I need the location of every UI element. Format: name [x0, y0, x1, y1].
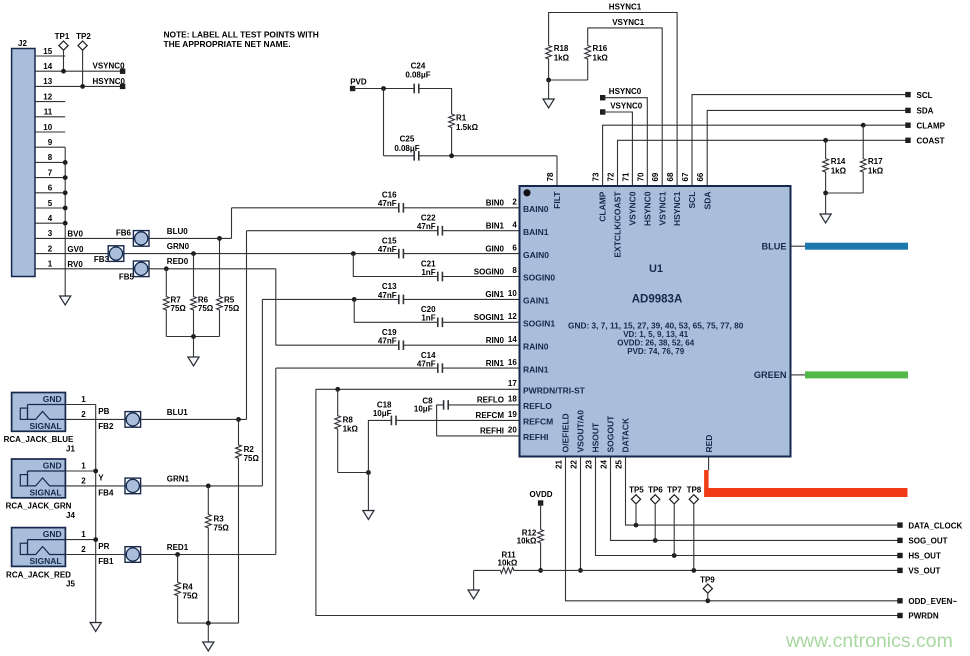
svg-text:RED: RED	[704, 435, 714, 453]
svg-text:SIGNAL: SIGNAL	[29, 487, 61, 497]
svg-text:SOGIN0: SOGIN0	[523, 273, 555, 283]
svg-text:VS_OUT: VS_OUT	[908, 567, 940, 576]
svg-text:RCA_JACK_RED: RCA_JACK_RED	[6, 570, 71, 579]
svg-text:11: 11	[44, 108, 53, 117]
svg-text:47nF: 47nF	[378, 337, 397, 346]
svg-text:HSOUT: HSOUT	[591, 422, 601, 453]
svg-text:PVD: PVD	[350, 78, 367, 87]
svg-text:SCL: SCL	[917, 91, 933, 100]
svg-text:3: 3	[48, 229, 53, 238]
svg-text:VSYNC0: VSYNC0	[610, 102, 643, 111]
svg-text:GND: GND	[43, 529, 62, 539]
svg-text:75Ω: 75Ω	[171, 304, 187, 313]
svg-text:RV0: RV0	[67, 260, 83, 269]
svg-text:19: 19	[508, 410, 517, 419]
svg-text:2: 2	[81, 410, 86, 419]
svg-text:47nF: 47nF	[417, 360, 436, 369]
svg-text:RED1: RED1	[167, 543, 189, 552]
svg-text:47nF: 47nF	[417, 222, 436, 231]
svg-text:SIGNAL: SIGNAL	[29, 556, 61, 566]
svg-text:SOG_OUT: SOG_OUT	[908, 537, 947, 546]
svg-text:BLU1: BLU1	[167, 408, 188, 417]
svg-text:R2: R2	[244, 445, 255, 454]
svg-text:ODD_EVEN~: ODD_EVEN~	[908, 597, 957, 606]
svg-text:1: 1	[48, 260, 53, 269]
svg-text:1: 1	[81, 395, 86, 404]
svg-text:24: 24	[600, 459, 609, 468]
svg-text:R16: R16	[593, 44, 608, 53]
svg-text:1nF: 1nF	[421, 268, 435, 277]
svg-text:8: 8	[512, 266, 517, 275]
svg-text:VSYNC1: VSYNC1	[657, 191, 667, 225]
svg-text:67: 67	[681, 172, 690, 181]
svg-text:REFLO: REFLO	[477, 396, 504, 405]
svg-text:DATA_CLOCK: DATA_CLOCK	[908, 521, 962, 530]
svg-text:20: 20	[508, 426, 517, 435]
svg-text:R8: R8	[343, 416, 354, 425]
svg-text:GND: GND	[43, 394, 62, 404]
svg-text:9: 9	[48, 138, 53, 147]
svg-text:R4: R4	[183, 583, 194, 592]
svg-text:FILT: FILT	[552, 191, 562, 209]
svg-text:GREEN: GREEN	[754, 370, 787, 380]
svg-text:1: 1	[81, 530, 86, 539]
svg-text:GRN1: GRN1	[167, 474, 190, 483]
svg-text:10: 10	[508, 289, 517, 298]
svg-text:J2: J2	[18, 39, 27, 48]
svg-text:C25: C25	[400, 135, 415, 144]
svg-text:TP5: TP5	[629, 486, 644, 495]
svg-text:18: 18	[508, 395, 517, 404]
svg-text:VSYNC0: VSYNC0	[628, 191, 638, 225]
svg-text:5: 5	[48, 199, 53, 208]
svg-text:75Ω: 75Ω	[183, 592, 199, 601]
svg-text:GND: 3, 7, 11, 15, 27, 39, 40,: GND: 3, 7, 11, 15, 27, 39, 40, 53, 65, 7…	[568, 321, 744, 331]
svg-text:1kΩ: 1kΩ	[593, 54, 609, 63]
svg-text:TP6: TP6	[648, 486, 663, 495]
svg-text:GV0: GV0	[67, 245, 84, 254]
svg-text:SOGIN1: SOGIN1	[474, 313, 505, 322]
svg-text:C24: C24	[411, 62, 426, 71]
svg-text:RIN1: RIN1	[486, 359, 505, 368]
svg-text:SDA: SDA	[917, 107, 934, 116]
svg-text:75Ω: 75Ω	[224, 304, 240, 313]
svg-text:0.08μF: 0.08μF	[405, 71, 430, 80]
svg-text:21: 21	[555, 459, 564, 468]
svg-text:1nF: 1nF	[421, 314, 435, 323]
svg-text:12: 12	[508, 312, 517, 321]
svg-text:2: 2	[81, 545, 86, 554]
svg-text:22: 22	[570, 459, 579, 468]
svg-text:10μF: 10μF	[414, 404, 433, 413]
svg-text:GIN0: GIN0	[485, 244, 504, 253]
svg-text:14: 14	[43, 62, 52, 71]
svg-text:72: 72	[607, 172, 616, 181]
svg-text:OVDD: OVDD	[529, 490, 552, 499]
svg-text:SDA: SDA	[702, 192, 712, 210]
svg-text:SOGIN1: SOGIN1	[523, 319, 555, 329]
svg-text:68: 68	[666, 172, 675, 181]
svg-text:25: 25	[615, 459, 624, 468]
svg-text:47nF: 47nF	[378, 199, 397, 208]
svg-text:R1: R1	[456, 114, 467, 123]
svg-text:REFCM: REFCM	[523, 417, 553, 427]
svg-text:R18: R18	[554, 44, 569, 53]
svg-text:10kΩ: 10kΩ	[517, 537, 537, 546]
svg-text:PB: PB	[98, 407, 109, 416]
svg-text:FB2: FB2	[98, 422, 114, 431]
svg-text:1.5kΩ: 1.5kΩ	[456, 123, 479, 132]
svg-text:GAIN1: GAIN1	[523, 296, 549, 306]
svg-text:10kΩ: 10kΩ	[498, 558, 518, 567]
svg-text:BLU0: BLU0	[167, 227, 188, 236]
svg-text:70: 70	[636, 172, 645, 181]
svg-text:RCA_JACK_BLUE: RCA_JACK_BLUE	[4, 435, 74, 444]
svg-text:13: 13	[43, 77, 52, 86]
svg-text:17: 17	[508, 379, 517, 388]
svg-text:EXTCLK/COAST: EXTCLK/COAST	[613, 191, 623, 258]
svg-text:RIN0: RIN0	[486, 336, 505, 345]
svg-text:14: 14	[508, 335, 517, 344]
svg-text:TP1: TP1	[55, 32, 70, 41]
svg-text:REFHI: REFHI	[480, 427, 504, 436]
svg-text:VSYNC1: VSYNC1	[612, 18, 645, 27]
svg-text:FB1: FB1	[98, 557, 114, 566]
svg-text:J5: J5	[66, 580, 75, 589]
svg-text:BAIN1: BAIN1	[523, 227, 549, 237]
svg-text:15: 15	[43, 47, 52, 56]
svg-text:4: 4	[48, 214, 53, 223]
svg-text:23: 23	[585, 459, 594, 468]
svg-text:BIN0: BIN0	[486, 199, 505, 208]
svg-text:0.08μF: 0.08μF	[394, 144, 419, 153]
svg-text:CLAMP: CLAMP	[598, 191, 608, 222]
svg-text:DATACK: DATACK	[621, 417, 631, 452]
svg-text:TP9: TP9	[700, 575, 715, 584]
svg-text:75Ω: 75Ω	[244, 454, 260, 463]
svg-text:GND: GND	[43, 461, 62, 471]
svg-text:1kΩ: 1kΩ	[831, 167, 847, 176]
svg-text:SOGIN0: SOGIN0	[474, 267, 505, 276]
svg-text:HSYNC0: HSYNC0	[642, 191, 652, 226]
svg-text:REFHI: REFHI	[523, 432, 549, 442]
svg-text:47nF: 47nF	[378, 245, 397, 254]
svg-text:PR: PR	[98, 542, 109, 551]
svg-text:12: 12	[43, 92, 52, 101]
svg-text:R14: R14	[831, 157, 846, 166]
svg-text:HSYNC1: HSYNC1	[672, 191, 682, 226]
svg-text:BIN1: BIN1	[486, 222, 505, 231]
svg-text:TP8: TP8	[687, 486, 702, 495]
svg-text:7: 7	[48, 168, 53, 177]
svg-text:RAIN0: RAIN0	[523, 341, 549, 351]
svg-text:10: 10	[43, 123, 52, 132]
svg-text:66: 66	[696, 172, 705, 181]
svg-text:VSOUT/A0: VSOUT/A0	[576, 410, 586, 453]
svg-text:J1: J1	[66, 445, 75, 454]
svg-text:TP2: TP2	[76, 32, 91, 41]
svg-text:2: 2	[512, 198, 517, 207]
svg-text:PVD: 74, 76, 79: PVD: 74, 76, 79	[627, 347, 684, 356]
svg-text:71: 71	[621, 172, 630, 181]
svg-text:GRN0: GRN0	[167, 242, 190, 251]
svg-text:SIGNAL: SIGNAL	[29, 421, 61, 431]
svg-text:4: 4	[512, 220, 517, 229]
svg-text:FB4: FB4	[98, 488, 114, 497]
svg-text:PWRDN/TRI-ST: PWRDN/TRI-ST	[523, 386, 586, 396]
svg-text:75Ω: 75Ω	[214, 524, 230, 533]
svg-text:47nF: 47nF	[378, 291, 397, 300]
svg-text:O/EFIELD: O/EFIELD	[561, 413, 571, 452]
svg-text:HS_OUT: HS_OUT	[908, 552, 941, 561]
svg-text:GIN1: GIN1	[485, 290, 504, 299]
svg-text:REFLO: REFLO	[523, 401, 552, 411]
svg-text:HSYNC0: HSYNC0	[609, 87, 642, 96]
svg-text:GAIN0: GAIN0	[523, 250, 549, 260]
svg-text:REFCM: REFCM	[476, 411, 505, 420]
svg-text:10μF: 10μF	[373, 409, 392, 418]
svg-text:R3: R3	[214, 515, 225, 524]
svg-text:8: 8	[48, 153, 53, 162]
svg-text:BAIN0: BAIN0	[523, 204, 549, 214]
svg-text:U1: U1	[649, 263, 663, 275]
svg-text:HSYNC1: HSYNC1	[609, 2, 642, 11]
svg-text:RAIN1: RAIN1	[523, 364, 549, 374]
svg-text:6: 6	[512, 243, 517, 252]
svg-text:SCL: SCL	[687, 192, 697, 209]
svg-text:16: 16	[508, 358, 517, 367]
svg-text:6: 6	[48, 184, 53, 193]
svg-text:SOGOUT: SOGOUT	[606, 415, 616, 453]
svg-text:69: 69	[651, 172, 660, 181]
svg-text:RED0: RED0	[167, 257, 189, 266]
svg-text:75Ω: 75Ω	[198, 304, 214, 313]
svg-text:2: 2	[48, 244, 53, 253]
svg-text:FB6: FB6	[116, 229, 132, 238]
svg-text:J4: J4	[66, 511, 75, 520]
svg-text:Y: Y	[98, 473, 104, 482]
svg-text:BV0: BV0	[67, 230, 83, 239]
svg-text:2: 2	[81, 476, 86, 485]
svg-text:R17: R17	[868, 157, 883, 166]
svg-text:1kΩ: 1kΩ	[868, 167, 884, 176]
svg-text:RCA_JACK_GRN: RCA_JACK_GRN	[6, 502, 72, 511]
svg-text:PWRDN: PWRDN	[908, 612, 938, 621]
svg-text:73: 73	[592, 172, 601, 181]
svg-text:THE APPROPRIATE NET NAME.: THE APPROPRIATE NET NAME.	[164, 39, 291, 49]
svg-text:CLAMP: CLAMP	[917, 121, 946, 130]
svg-text:1kΩ: 1kΩ	[343, 425, 359, 434]
svg-text:FB3: FB3	[94, 255, 110, 264]
svg-text:BLUE: BLUE	[761, 242, 786, 252]
svg-text:TP7: TP7	[667, 486, 682, 495]
svg-text:www.cntronics.com: www.cntronics.com	[785, 630, 953, 652]
svg-text:COAST: COAST	[917, 137, 945, 146]
svg-text:FB5: FB5	[119, 273, 135, 282]
svg-text:1kΩ: 1kΩ	[554, 54, 570, 63]
svg-text:78: 78	[546, 172, 555, 181]
svg-text:1: 1	[81, 461, 86, 470]
svg-text:AD9983A: AD9983A	[632, 294, 683, 306]
